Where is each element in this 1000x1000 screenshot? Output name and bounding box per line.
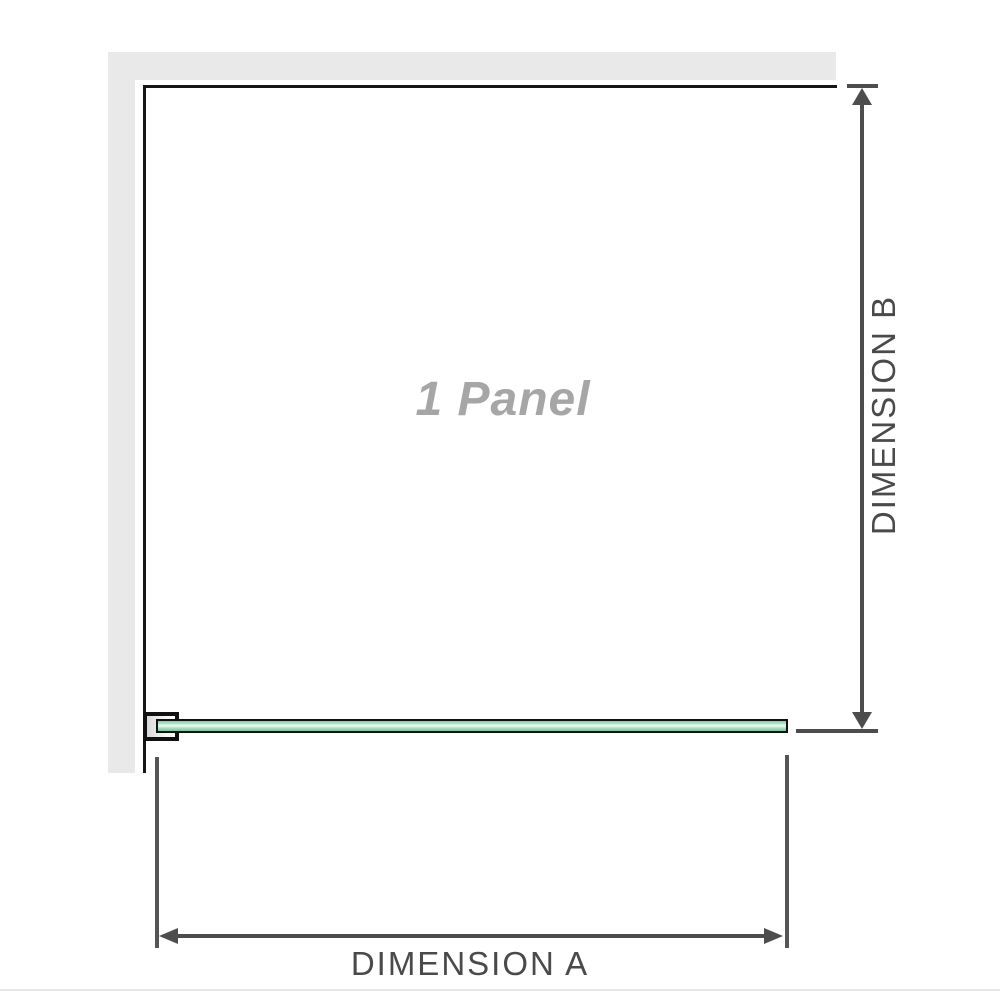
glass-panel — [156, 719, 788, 733]
arrow-left-icon — [159, 928, 178, 944]
frame-top-border — [143, 85, 837, 88]
shower-panel-diagram: 1 Panel DIMENSION B DIMENSION A — [0, 0, 1000, 1000]
dimension-a-line — [174, 934, 768, 938]
panel-count-label: 1 Panel — [353, 372, 653, 427]
wall-left — [108, 52, 135, 773]
arrow-up-icon — [852, 88, 872, 105]
dimension-a-left-extension-line — [155, 757, 159, 948]
dimension-b-bottom-tick — [796, 729, 878, 733]
wall-top — [108, 52, 836, 80]
arrow-down-icon — [852, 712, 872, 729]
dimension-b-label: DIMENSION B — [865, 295, 903, 535]
page-divider — [0, 989, 1000, 991]
dimension-a-label: DIMENSION A — [351, 945, 589, 983]
dimension-b-line — [860, 98, 864, 718]
frame-left-border — [143, 85, 146, 773]
arrow-right-icon — [764, 928, 783, 944]
dimension-a-right-extension-line — [785, 755, 789, 948]
